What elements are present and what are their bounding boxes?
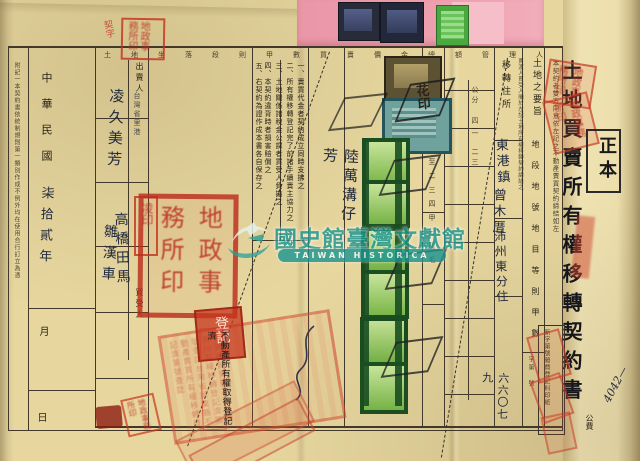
clause-3: 三、土地關係諸稅金公課者買受人負擔之 (274, 62, 284, 234)
date-month-label: 月 (35, 326, 50, 336)
clause-5: 五、右契約為證作成本書各自保存之 (254, 62, 264, 234)
stamp-vignette (344, 9, 372, 31)
stamp-vignette (441, 11, 464, 39)
watermark-en-text: TAIWAN HISTORICA (278, 249, 446, 262)
seal-glyphs: 地政事務所印 (125, 397, 154, 433)
archive-watermark: 國史館臺灣文獻館 TAIWAN HISTORICA (224, 216, 474, 268)
cancel-chop-text: 花印 (411, 83, 433, 111)
clause-4: 四、本契約違背時者損害賠償之 (263, 62, 273, 234)
cancel-chop-diamond-2 (328, 93, 388, 132)
red-handwriting-note: 契字 (100, 19, 116, 39)
stamp-vignette (387, 10, 417, 33)
place3-handwriting: 沛州東分住 (492, 230, 512, 317)
dark-postage-stamp-2 (380, 2, 424, 43)
land-summary-label: 土地之要旨 (530, 58, 543, 132)
preamble-column-left: 賣渡人買受人間於左記土地所有權移轉契約締結之 (516, 58, 524, 190)
original-copy-box: 正本 (586, 129, 621, 193)
seal-glyphs: 地政事務所印 (150, 205, 227, 306)
seal-glyphs: 地政事務所印 (125, 21, 150, 57)
top-left-red-seal: 地政事務所印 (121, 18, 166, 61)
archive-logo-icon (224, 218, 274, 264)
parcel-grid-note: 公分 四二 二三 (470, 86, 480, 236)
bottom-dark-chop (95, 405, 123, 429)
seller-name-handwriting: 凌久美芳 (103, 88, 127, 184)
clause-2: 二、所有權移轉登記完了前諸手續賣主協力之 (285, 62, 295, 234)
pen-note-handwriting: 4042— (601, 364, 631, 405)
original-copy-label: 正本 (593, 136, 619, 188)
amount-handwriting: 六六〇七九 (477, 371, 511, 426)
scanned-contract-document: 土地坐落段則甲數買賣價金總額管理人 附記一本契約書依統制規則第一類別作成不例外均… (0, 0, 640, 461)
land-field-labels: 地段地號地目等則甲數 (530, 140, 541, 354)
seal-glyphs: 地政事務所印 (549, 98, 589, 150)
handwritten-year: 㭍拾貳年 (33, 186, 55, 287)
transfer-label: 移轉住所 (499, 60, 512, 124)
fee-label: 公費 (584, 414, 595, 430)
fine-print-note: 附記一本契約書依統制規則第一類別作成不例外均在使用合行訂立為憑 (12, 62, 21, 312)
registration-done-text: 不動產所有權取得登記濟 (204, 331, 233, 428)
date-era-label: 中華民國 (38, 72, 54, 192)
stamp-frame-band (362, 138, 369, 406)
date-day-label: 日 (33, 412, 48, 422)
dark-postage-stamp-1 (338, 2, 380, 41)
form-header-row: 土地坐落段則甲數買賣價金總額管理人 (104, 50, 556, 61)
clause-1: 一、賣買代金者契約成立同時支拂之 (296, 62, 306, 234)
province-note-handwriting: 台灣省里港 (132, 92, 142, 182)
green-postage-stamp-top (436, 5, 469, 46)
top-crease (0, 3, 320, 20)
watermark-en-band: TAIWAN HISTORICA (278, 249, 446, 262)
bottom-red-box-chop: 地政事務所印 (120, 393, 162, 438)
